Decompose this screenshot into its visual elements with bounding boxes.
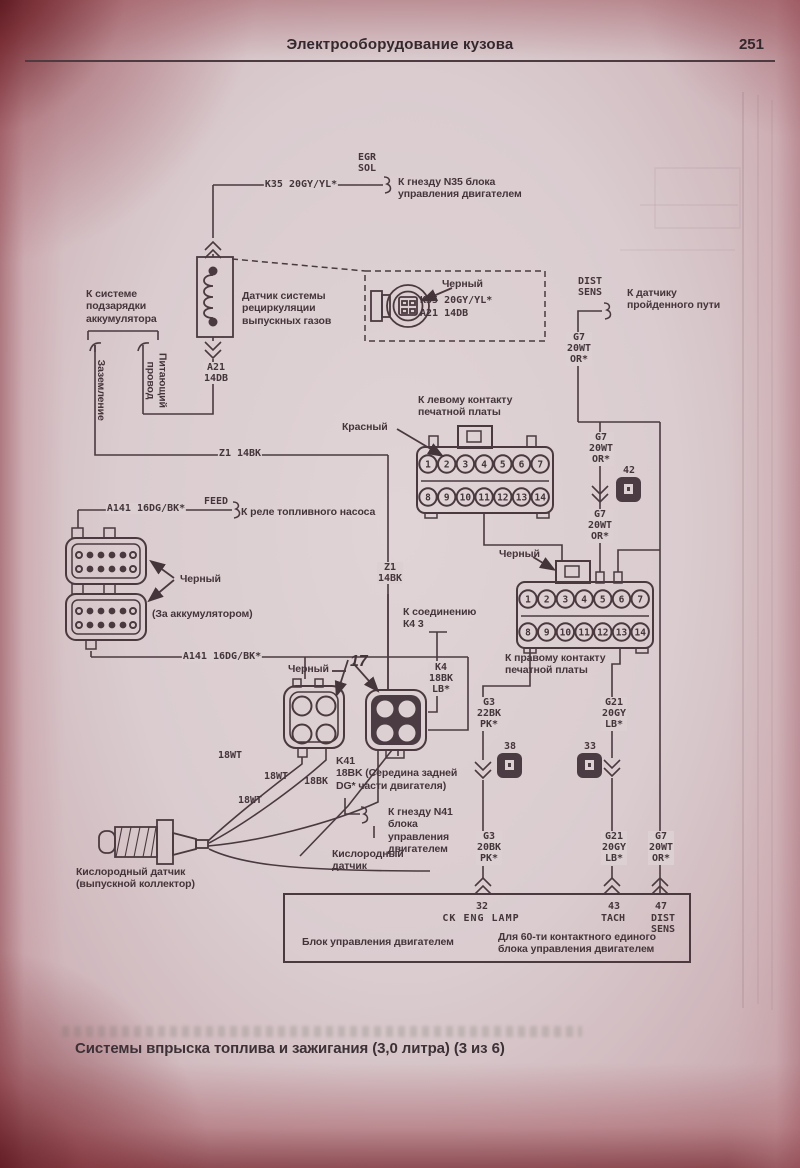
pin-number: 4 — [481, 460, 487, 471]
label-17: 17 — [350, 653, 368, 672]
pin-number: 1 — [525, 595, 531, 606]
label-g7-4: G7 20WT OR* — [648, 831, 674, 865]
label-to-n35: К гнезду N35 блока управления двигателем — [398, 176, 522, 201]
label-feed-wire-vertical: Питающий провод — [144, 351, 169, 409]
pcb-left-connector — [417, 426, 553, 518]
pin-number: 12 — [597, 628, 608, 639]
pin-number: 12 — [497, 493, 508, 504]
label-k35-b: K35 20GY/YL* — [420, 295, 492, 306]
splice-box-38 — [497, 753, 522, 778]
splice-chevron-icon — [604, 760, 620, 776]
ecm-pin-43-name: TACH — [601, 913, 625, 924]
ecm-pin-32-name: CK ENG LAMP — [442, 913, 519, 924]
label-k4: K4 18BK LB* — [428, 662, 454, 696]
label-k41-block: K41 18BK (Середина задней DG* части двиг… — [336, 755, 457, 792]
pin-number: 7 — [537, 460, 543, 471]
pin-number: 2 — [544, 595, 550, 606]
label-k35-wire: K35 20GY/YL* — [264, 179, 338, 190]
pin-number: 11 — [578, 628, 590, 639]
pin-number: 9 — [544, 628, 550, 639]
pin-number: 5 — [500, 460, 506, 471]
label-behind-battery: (За аккумулятором) — [152, 608, 253, 620]
pin-number: 14 — [534, 493, 546, 504]
ecm-pin-47: 47 — [655, 901, 667, 912]
label-black-3: Черный — [288, 663, 329, 675]
label-a141-2: A141 16DG/BK* — [182, 651, 262, 662]
label-to-left-contact: К левому контакту печатной платы — [418, 394, 512, 419]
pin-number: 8 — [425, 493, 431, 504]
label-egr-sol: EGR SOL — [358, 152, 376, 174]
splice-chevron-icon — [604, 878, 620, 894]
pin-number: 8 — [525, 628, 531, 639]
label-o2-sensor-left: Кислородный датчик (выпускной коллектор) — [76, 866, 195, 891]
label-o2-sensor-right: Кислородный датчик — [332, 848, 404, 873]
label-18wt-2: 18WT — [264, 771, 288, 782]
label-to-right-contact: К правому контакту печатной платы — [505, 652, 605, 677]
label-splice-33: 33 — [584, 741, 596, 752]
label-g21-1: G21 20GY LB* — [601, 697, 627, 731]
splice-box-33 — [577, 753, 602, 778]
splice-chevron-icon — [205, 342, 221, 358]
pin-number: 13 — [516, 493, 528, 504]
label-splice-42: 42 — [623, 465, 635, 476]
ecm-60pin-note: Для 60-ти контактного единого блока упра… — [498, 931, 656, 956]
label-splice-38: 38 — [504, 741, 516, 752]
pin-number: 13 — [616, 628, 628, 639]
label-a21: A21 14DB — [203, 362, 229, 384]
pin-number: 11 — [478, 493, 490, 504]
label-g7-2: G7 20WT OR* — [588, 432, 614, 466]
label-black-4: Черный — [499, 548, 540, 560]
pin-number: 1 — [425, 460, 431, 471]
pin-number: 10 — [560, 628, 572, 639]
bleed-through-text — [62, 1026, 582, 1037]
label-black-2: Черный — [180, 573, 221, 585]
label-black-1: Черный — [442, 278, 483, 290]
pin-number: 3 — [563, 595, 569, 606]
ecm-name: Блок управления двигателем — [302, 936, 454, 948]
label-dist-sens-top: DIST SENS — [578, 276, 602, 298]
oxygen-sensor-symbol — [99, 820, 208, 864]
pin-number: 9 — [444, 493, 450, 504]
label-ground-vertical: Заземление — [95, 349, 107, 431]
o2-connector-right — [366, 690, 426, 758]
label-g3-2: G3 20BK PK* — [476, 831, 502, 865]
pin-number: 10 — [460, 493, 472, 504]
label-z1-vertical: Z1 14BK — [377, 562, 403, 584]
label-red: Красный — [342, 421, 388, 433]
label-g3-1: G3 22BK PK* — [476, 697, 502, 731]
label-feed: FEED — [204, 496, 228, 507]
ecm-pin-43: 43 — [608, 901, 620, 912]
label-a141-1: A141 16DG/BK* — [106, 503, 186, 514]
pin-number: 4 — [581, 595, 587, 606]
battery-connector-2 — [66, 584, 146, 649]
pin-number: 3 — [463, 460, 469, 471]
label-g21-2: G21 20GY LB* — [601, 831, 627, 865]
label-18wt-3: 18WT — [238, 795, 262, 806]
label-egr-sensor: Датчик системы рециркуляции выпускных га… — [242, 290, 331, 327]
pcb-right-connector — [517, 561, 653, 653]
scanned-manual-page: { "header": { "title": "Электрооборудова… — [0, 0, 800, 1168]
splice-chevron-icon — [475, 878, 491, 894]
o2-connector-left — [284, 679, 344, 757]
battery-connector-1 — [66, 528, 146, 584]
label-g7-1: G7 20WT OR* — [566, 332, 592, 366]
splice-box-42 — [616, 477, 641, 502]
splice-chevron-icon — [475, 762, 491, 778]
label-to-charge-system: К системе подзарядки аккумулятора — [86, 288, 157, 325]
label-z1-horizontal: Z1 14BK — [218, 448, 262, 459]
label-g7-3: G7 20WT OR* — [587, 509, 613, 543]
label-to-fuel-relay: К реле топливного насоса — [241, 506, 375, 518]
pin-number: 6 — [619, 595, 625, 606]
label-to-dist-sensor: К датчику пройденного пути — [627, 287, 720, 312]
label-to-k4-junction: К соединению К4 3 — [403, 606, 476, 631]
figure-caption: Системы впрыска топлива и зажигания (3,0… — [75, 1040, 505, 1057]
egr-solenoid-symbol — [197, 257, 233, 337]
label-18bk: 18BK — [304, 776, 328, 787]
scan-bleed-artifacts — [620, 92, 772, 1010]
pin-number: 2 — [444, 460, 450, 471]
black-connectors-arrows — [150, 562, 174, 600]
pin-number: 5 — [600, 595, 606, 606]
label-a21-b: A21 14DB — [420, 308, 468, 319]
pin-number: 14 — [634, 628, 646, 639]
label-18wt-1: 18WT — [218, 750, 242, 761]
pin-number: 6 — [519, 460, 525, 471]
ecm-pin-32: 32 — [476, 901, 488, 912]
pin-number: 7 — [637, 595, 643, 606]
